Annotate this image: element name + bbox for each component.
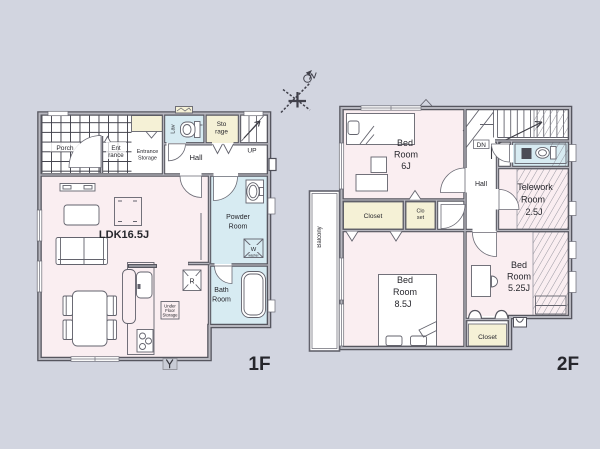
svg-text:2F: 2F	[557, 354, 579, 375]
svg-text:Hall: Hall	[475, 181, 488, 188]
svg-text:Sto: Sto	[217, 121, 227, 128]
svg-text:5.25J: 5.25J	[508, 283, 530, 293]
svg-text:Ent: Ent	[111, 145, 121, 152]
svg-text:Bed: Bed	[397, 275, 413, 285]
svg-text:DN: DN	[477, 142, 487, 149]
svg-text:Storage: Storage	[162, 313, 178, 318]
svg-text:Storage: Storage	[138, 156, 157, 162]
svg-text:Bed: Bed	[511, 260, 527, 270]
svg-text:Room: Room	[507, 272, 531, 282]
svg-text:Entrance: Entrance	[137, 149, 159, 155]
svg-text:1F: 1F	[248, 354, 270, 375]
svg-text:Closet: Closet	[364, 213, 383, 220]
svg-text:Clo: Clo	[416, 209, 424, 215]
svg-text:washer: washer	[248, 254, 259, 258]
svg-text:8.5J: 8.5J	[394, 299, 411, 309]
svg-text:Room: Room	[212, 297, 231, 304]
svg-text:rage: rage	[215, 129, 228, 136]
svg-text:Room: Room	[521, 195, 545, 205]
svg-text:Telework: Telework	[517, 182, 553, 192]
svg-text:Hall: Hall	[189, 153, 202, 162]
svg-text:W: W	[251, 247, 257, 253]
svg-text:2.5J: 2.5J	[525, 207, 542, 217]
svg-text:Room: Room	[394, 150, 418, 160]
svg-text:6J: 6J	[401, 161, 411, 171]
svg-text:Bed: Bed	[397, 138, 413, 148]
svg-text:UP: UP	[247, 148, 257, 155]
svg-text:Lav: Lav	[171, 124, 177, 133]
svg-text:set: set	[417, 215, 425, 221]
svg-text:Bath: Bath	[214, 287, 229, 294]
svg-text:Room: Room	[393, 287, 417, 297]
svg-text:Room: Room	[229, 224, 248, 231]
svg-text:Porch: Porch	[56, 145, 74, 152]
svg-text:rance: rance	[108, 152, 124, 159]
svg-text:Balcony: Balcony	[317, 226, 323, 247]
svg-text:R: R	[189, 279, 194, 286]
svg-text:Powder: Powder	[226, 214, 250, 221]
svg-text:Closet: Closet	[478, 334, 497, 341]
svg-text:LDK16.5J: LDK16.5J	[99, 229, 149, 241]
